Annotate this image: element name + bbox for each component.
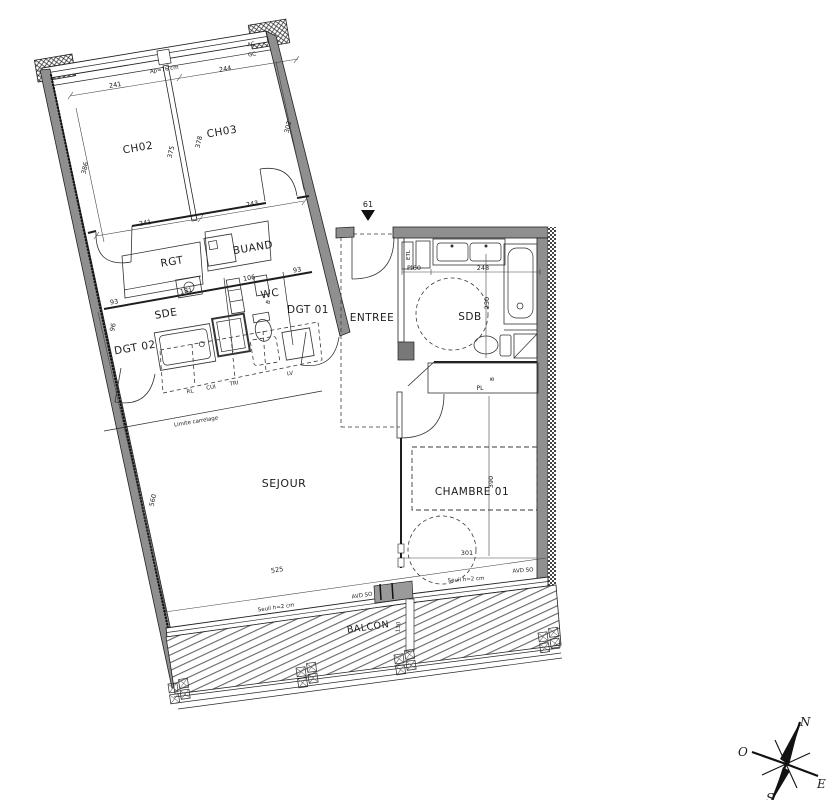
wall-stub-entrance (336, 227, 354, 238)
room-label-rgt: RGT (160, 254, 185, 270)
anno-seuil-chambre: Seuil h=2 cm (447, 576, 484, 585)
room-label-entree: ENTREE (350, 312, 394, 324)
left-wing (34, 19, 350, 688)
door-arc-chambre (400, 394, 444, 438)
dim-chambre-width: 301 (461, 549, 473, 557)
anno-etl: ETL (406, 249, 412, 260)
dim-ch03-top: 244 (218, 64, 232, 74)
frame-cap-1 (398, 544, 404, 553)
wall-top-right-wing (393, 227, 548, 238)
anno-kitchen-rl: RL (186, 388, 195, 395)
room-label-sejour: SEJOUR (262, 477, 307, 490)
door-leaf-chambre (397, 392, 402, 438)
bathtub (504, 244, 537, 330)
right-wing (336, 210, 556, 594)
wall-sde-row-top (104, 272, 312, 309)
dim-sdb-placard: Pl60 (407, 264, 421, 272)
room-label-buand: BUAND (232, 239, 274, 258)
room-label-dgt01: DGT 01 (287, 304, 329, 316)
dim-dgt01-width: 93 (292, 265, 301, 274)
anno-closet-pl: PL (477, 385, 485, 392)
sdb-corner-shelf (514, 334, 537, 358)
door-arc-dgt01 (301, 337, 339, 366)
tile-limit-line (104, 391, 322, 431)
anno-kitchen-lv: LV (287, 370, 294, 377)
room-label-sde: SDE (154, 306, 179, 322)
dim-ch03-bottom: 243 (245, 199, 259, 209)
compass-label-n: N (799, 715, 811, 729)
dim-dgt02: 96 (108, 322, 118, 332)
door-number: 61 (363, 200, 373, 209)
room-label-chambre01: CHAMBRE 01 (435, 486, 509, 498)
dim-sdb-width: 248 (477, 264, 489, 272)
washing-machine (204, 234, 236, 266)
wall-bedrooms-bottom-a (88, 231, 96, 233)
compass-rose: N O E S (738, 715, 826, 800)
dim-ch02-top: 241 (108, 80, 122, 90)
dim-sejour-depth: 560 (148, 493, 158, 507)
compass-south-needle (772, 767, 790, 800)
dim-sde-left: 93 (109, 297, 118, 306)
frame-cap-2 (398, 558, 404, 567)
dim-sdb-depth: 250 (483, 297, 491, 309)
partition-entree-sdb (398, 238, 404, 342)
partition-ch02-ch03 (163, 65, 197, 221)
anno-wc-b: B (266, 299, 273, 304)
compass-label-s: S (766, 791, 774, 800)
entrance-arrow-icon (361, 210, 375, 221)
compass-label-o: O (738, 745, 748, 759)
threshold-tick-2 (392, 583, 393, 599)
room-label-dgt02: DGT 02 (113, 339, 156, 358)
dim-ch02-bottom: 241 (138, 218, 152, 228)
anno-closet-b: B (490, 377, 496, 381)
room-label-ch02: CH02 (122, 140, 154, 157)
door-leaf-dgt01 (301, 332, 306, 365)
anno-avd-sejour: AVD SO (351, 591, 373, 600)
dim-chambre-depth: 390 (487, 476, 495, 488)
room-label-wc: WC (260, 287, 280, 302)
dim-ch02-left: 386 (80, 161, 91, 175)
sdb-vanity (433, 239, 505, 265)
door-arc-ch02 (96, 232, 131, 263)
room-label-ch03: CH03 (206, 124, 238, 141)
sdb-door-block (398, 342, 414, 360)
kitchen-lv-unit (282, 328, 314, 360)
shower-tray-1 (154, 324, 216, 371)
window-mullion (157, 49, 171, 65)
room-label-sdb: SDB (458, 311, 481, 323)
compass-label-e: E (816, 777, 826, 791)
threshold-tick-1 (380, 584, 381, 600)
bed-dashed (412, 447, 537, 510)
anno-duct-ac: AC (247, 41, 256, 48)
anno-kitchen-cui: CUI (206, 384, 217, 392)
door-leaf-ch03 (260, 169, 265, 201)
sdb-toilet (474, 335, 511, 356)
door-arc-ch03 (260, 168, 297, 196)
dim-balcon-depth: 130 (396, 621, 403, 632)
wall-right-outer (537, 238, 548, 592)
anno-kitchen-tri: TRI (228, 380, 239, 388)
door-leaf-sdb (408, 362, 434, 386)
anno-duct-gc: GC (248, 51, 257, 58)
wall-right-cladding (548, 227, 556, 594)
insulation-line-left (51, 75, 179, 680)
kitchen-counter (160, 322, 322, 393)
door-arc-entrance (352, 237, 394, 279)
door-leaf-ch02 (131, 226, 132, 262)
floor-plan-canvas: CH02 CH03 RGT BUAND SDE WC DGT 01 DGT 02… (0, 0, 840, 800)
anno-avd-chambre: AVD SO (512, 567, 534, 574)
dim-ch02-part: 375 (166, 145, 177, 159)
dim-sejour-width: 525 (270, 565, 283, 575)
balcony-divider (406, 599, 414, 651)
sde-cabinet (226, 278, 244, 314)
dim-ch03-part: 378 (194, 135, 205, 149)
